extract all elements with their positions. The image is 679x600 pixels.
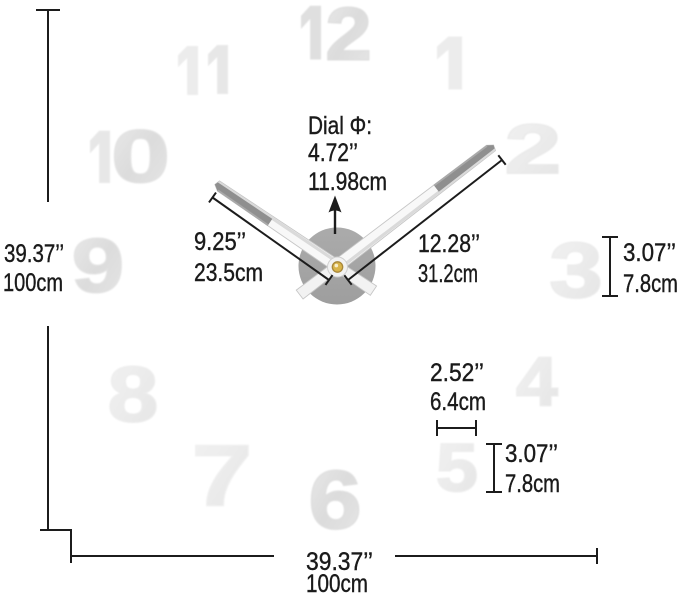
svg-text:7: 7 [192,427,253,523]
svg-text:7.8cm: 7.8cm [505,470,560,498]
svg-text:100cm: 100cm [3,269,63,297]
svg-text:5: 5 [436,430,478,506]
svg-text:3.07’’: 3.07’’ [505,440,558,468]
svg-text:2: 2 [325,0,371,76]
svg-text:31.2cm: 31.2cm [418,260,478,288]
svg-text:11.98cm: 11.98cm [308,168,387,196]
svg-text:Dial Φ:: Dial Φ: [308,112,372,140]
svg-text:0: 0 [111,116,170,199]
svg-text:39.37’’: 39.37’’ [4,240,64,268]
svg-text:4.72’’: 4.72’’ [308,139,358,167]
svg-text:7.8cm: 7.8cm [623,270,678,298]
svg-text:6.4cm: 6.4cm [430,388,486,416]
svg-text:2: 2 [505,110,561,188]
svg-text:3.07’’: 3.07’’ [623,239,676,267]
svg-text:23.5cm: 23.5cm [194,259,263,287]
svg-text:3: 3 [549,227,602,314]
svg-text:100cm: 100cm [306,570,368,598]
svg-text:4: 4 [516,344,558,421]
svg-text:2.52’’: 2.52’’ [430,359,484,387]
svg-text:8: 8 [108,350,159,437]
svg-text:9.25’’: 9.25’’ [194,228,246,256]
svg-text:6: 6 [308,453,361,546]
svg-text:12.28’’: 12.28’’ [418,230,480,258]
svg-text:9: 9 [72,225,124,309]
